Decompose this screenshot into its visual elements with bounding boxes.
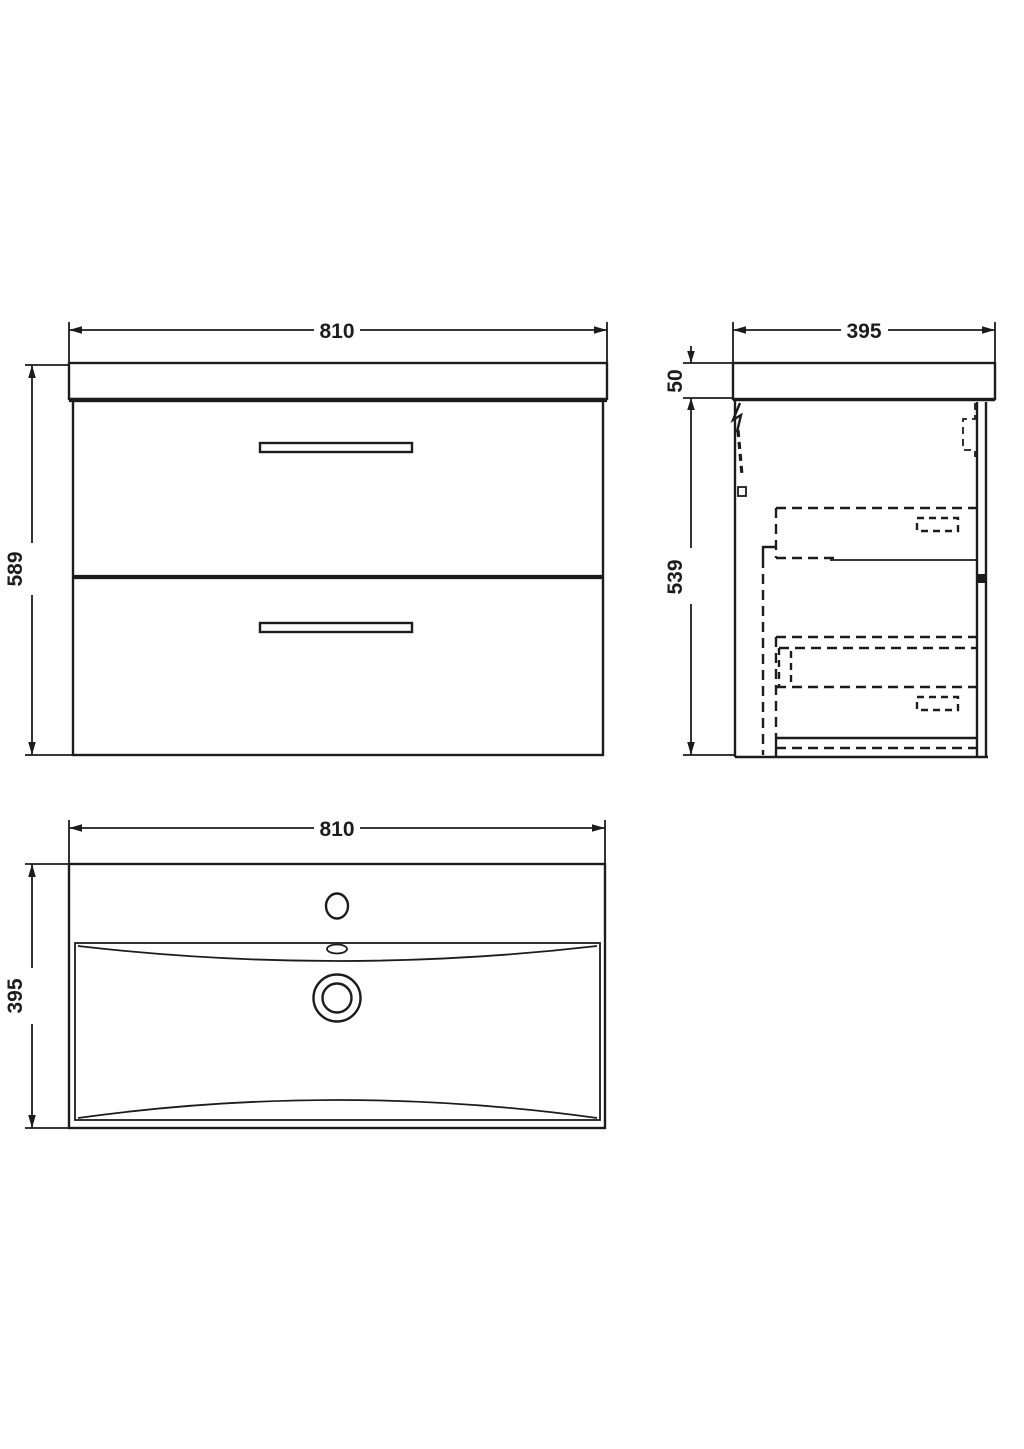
runner-step (763, 547, 776, 558)
side-worktop (733, 363, 995, 399)
arrowhead (69, 326, 82, 334)
plan-view: 810 395 (4, 816, 605, 1128)
hanger-adjuster (738, 487, 746, 496)
plan-width-dimension: 810 (69, 816, 605, 863)
side-wall-bracket-hidden (963, 403, 975, 457)
front-height-dimension: 589 (4, 365, 73, 755)
arrowhead (28, 1115, 36, 1128)
side-cabinet-height-label: 539 (664, 559, 687, 594)
bowl-edge (75, 943, 600, 1120)
basin-overflow-slot (327, 945, 347, 954)
vanity-unit-technical-drawing: 810 589 (0, 0, 1024, 1449)
side-worktop-height-label: 50 (664, 369, 687, 392)
arrowhead (687, 742, 695, 755)
waste-drain-inner-ring (323, 984, 352, 1013)
front-view: 810 589 (4, 318, 607, 755)
drawer2-handle-hidden (917, 697, 958, 710)
arrowhead (687, 351, 695, 363)
plan-width-label: 810 (319, 818, 354, 841)
side-view: 395 50 539 (664, 318, 995, 757)
front-drawer-handle-bottom (260, 623, 412, 632)
side-hidden-lower-drawer (776, 637, 977, 757)
hanger-hook-shaft-hidden (738, 430, 742, 475)
front-width-label: 810 (319, 320, 354, 343)
plan-depth-label: 395 (4, 978, 27, 1013)
front-width-dimension: 810 (69, 318, 607, 362)
front-height-label: 589 (4, 551, 27, 586)
side-hidden-upper-drawer (776, 508, 977, 560)
arrowhead (28, 864, 36, 877)
basin-inner-bowl (75, 943, 600, 1120)
side-worktop-height-dimension: 50 (664, 346, 733, 410)
drawer1-handle-hidden (917, 518, 958, 531)
arrowhead (28, 365, 36, 378)
technical-drawing-page: 810 589 (0, 0, 1024, 1449)
arrowhead (594, 326, 607, 334)
basin-tap-hole (326, 894, 348, 919)
front-worktop (69, 363, 607, 399)
side-drawer-front-gap (976, 574, 987, 583)
basin-waste-drain (314, 975, 361, 1022)
arrowhead (28, 742, 36, 755)
side-cabinet-height-dimension: 539 (664, 398, 735, 755)
side-width-dimension: 395 (733, 318, 995, 362)
arrowhead (592, 824, 605, 832)
side-width-label: 395 (846, 320, 881, 343)
arrowhead (733, 326, 746, 334)
plan-depth-dimension: 395 (4, 864, 69, 1128)
arrowhead (69, 824, 82, 832)
side-hidden-runner (763, 547, 776, 755)
arrowhead (982, 326, 995, 334)
front-drawer-handle-top (260, 443, 412, 452)
